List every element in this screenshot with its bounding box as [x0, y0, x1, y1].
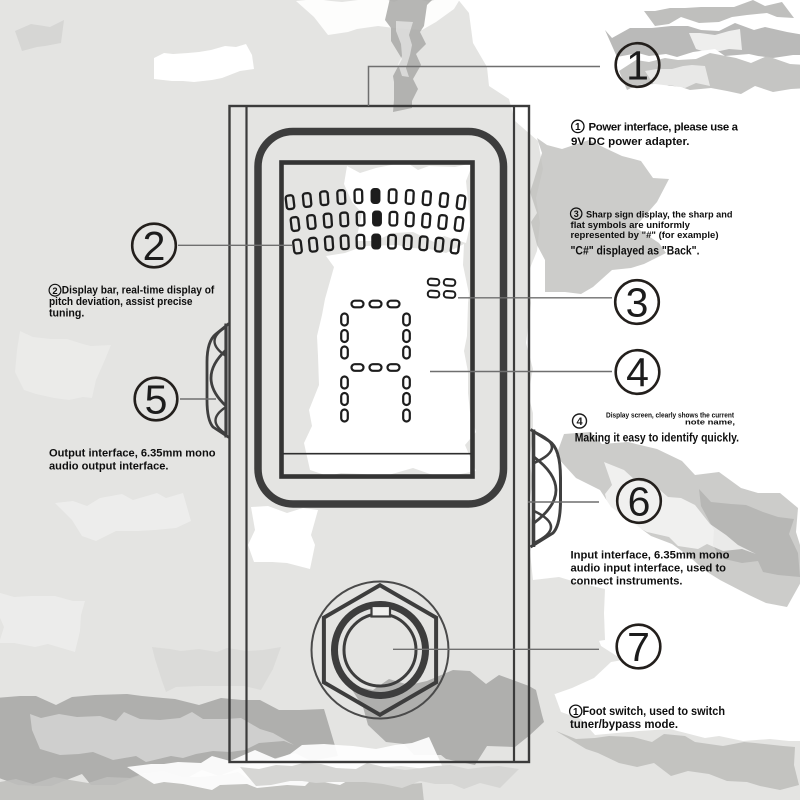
svg-text:Display bar, real-time display: Display bar, real-time display of [62, 285, 215, 297]
svg-text:3: 3 [574, 209, 579, 219]
svg-text:Sharp sign display, the sharp: Sharp sign display, the sharp and [586, 209, 733, 220]
svg-text:4: 4 [626, 350, 649, 396]
svg-text:2: 2 [143, 223, 166, 269]
svg-text:audio input interface, used to: audio input interface, used to [571, 563, 727, 575]
svg-text:"C#" displayed as "Back".: "C#" displayed as "Back". [571, 245, 700, 257]
svg-text:9V DC power adapter.: 9V DC power adapter. [571, 136, 690, 148]
svg-text:Making it easy to identify qui: Making it easy to identify quickly. [575, 433, 739, 445]
svg-text:7: 7 [627, 624, 650, 670]
svg-text:represented by "#" (for exampl: represented by "#" (for example) [571, 230, 719, 241]
svg-text:2: 2 [52, 285, 57, 296]
svg-text:1: 1 [575, 122, 581, 133]
svg-text:Output interface, 6.35mm mono: Output interface, 6.35mm mono [49, 448, 216, 460]
svg-text:tuning.: tuning. [49, 307, 84, 319]
svg-text:pitch deviation, assist precis: pitch deviation, assist precise [49, 296, 193, 308]
svg-text:3: 3 [626, 280, 649, 326]
svg-text:connect instruments.: connect instruments. [571, 575, 683, 587]
svg-text:note name,: note name, [685, 418, 735, 427]
svg-text:6: 6 [628, 479, 651, 525]
svg-text:Foot switch, used to switch: Foot switch, used to switch [583, 706, 726, 718]
svg-text:1: 1 [573, 707, 579, 718]
svg-text:audio output interface.: audio output interface. [49, 460, 169, 472]
svg-text:tuner/bypass mode.: tuner/bypass mode. [570, 719, 678, 731]
svg-text:5: 5 [145, 377, 168, 423]
svg-text:4: 4 [576, 416, 583, 428]
svg-text:Input interface, 6.35mm mono: Input interface, 6.35mm mono [571, 550, 730, 562]
svg-text:1: 1 [626, 43, 649, 89]
svg-text:Power interface, please use a: Power interface, please use a [589, 122, 739, 134]
